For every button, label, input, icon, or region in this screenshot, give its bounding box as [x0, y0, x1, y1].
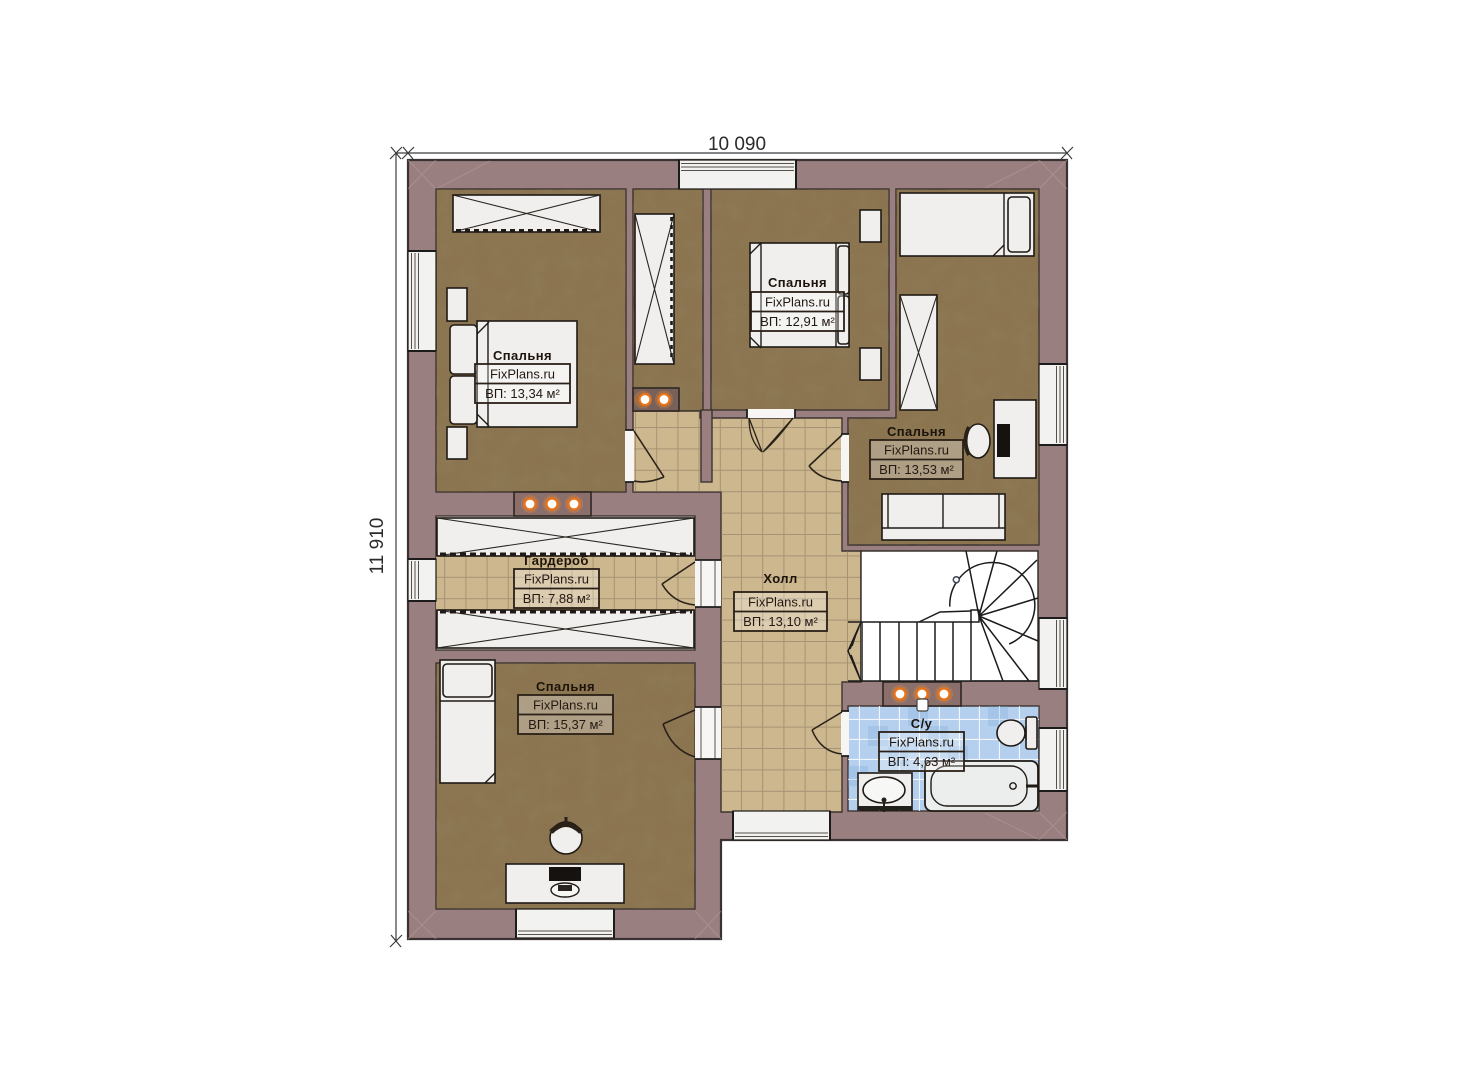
svg-text:ВП: 12,91 м²: ВП: 12,91 м²: [760, 314, 835, 329]
svg-text:FixPlans.ru: FixPlans.ru: [884, 443, 949, 458]
svg-text:ВП: 4,63 м²: ВП: 4,63 м²: [888, 754, 956, 769]
svg-text:FixPlans.ru: FixPlans.ru: [889, 735, 954, 750]
svg-text:Спальня: Спальня: [493, 348, 552, 363]
svg-text:FixPlans.ru: FixPlans.ru: [490, 367, 555, 382]
svg-text:Холл: Холл: [763, 571, 797, 586]
svg-text:ВП: 13,10 м²: ВП: 13,10 м²: [743, 614, 818, 629]
svg-text:ВП: 13,34 м²: ВП: 13,34 м²: [485, 386, 560, 401]
svg-text:Спальня: Спальня: [536, 679, 595, 694]
svg-text:Спальня: Спальня: [768, 275, 827, 290]
svg-text:FixPlans.ru: FixPlans.ru: [533, 698, 598, 713]
svg-text:ВП: 15,37 м²: ВП: 15,37 м²: [528, 717, 603, 732]
svg-text:FixPlans.ru: FixPlans.ru: [765, 295, 830, 310]
svg-text:ВП: 7,88 м²: ВП: 7,88 м²: [523, 591, 591, 606]
svg-text:FixPlans.ru: FixPlans.ru: [748, 595, 813, 610]
svg-text:10 090: 10 090: [708, 134, 766, 155]
svg-text:FixPlans.ru: FixPlans.ru: [524, 572, 589, 587]
svg-text:11 910: 11 910: [367, 518, 388, 575]
svg-text:Гардероб: Гардероб: [524, 553, 589, 568]
svg-text:ВП: 13,53 м²: ВП: 13,53 м²: [879, 462, 954, 477]
svg-text:С/у: С/у: [911, 716, 933, 731]
svg-text:Спальня: Спальня: [887, 424, 946, 439]
